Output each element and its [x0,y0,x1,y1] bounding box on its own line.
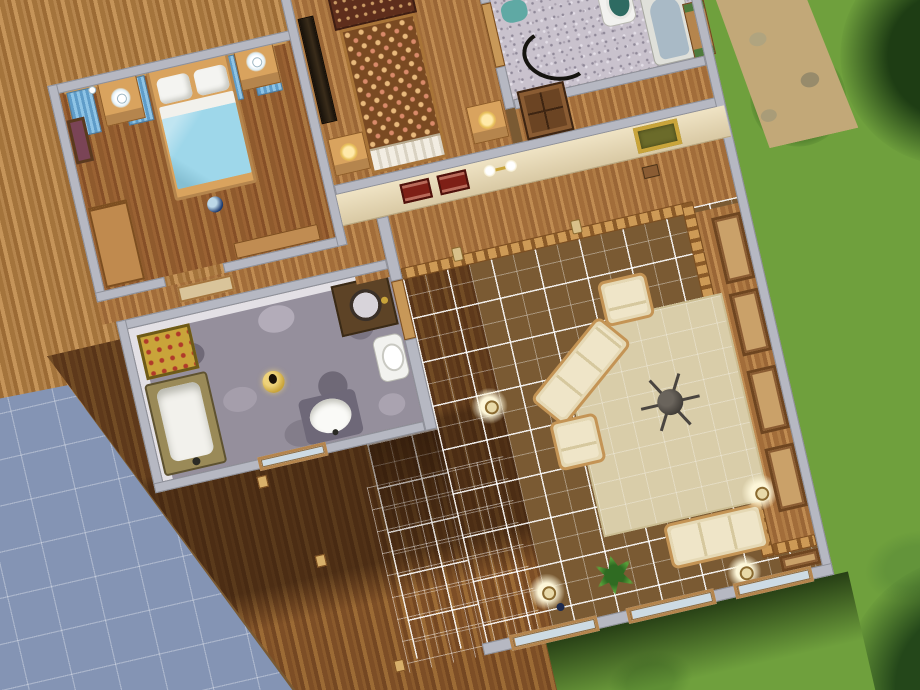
toilet-lid [603,0,636,22]
game-viewport [0,0,920,690]
gold-floor-drain[interactable] [260,369,286,395]
vanity-round-basin[interactable] [331,274,399,338]
bathtub-basin [155,381,215,463]
house-scene [0,0,920,690]
red-wall-plaque-1[interactable] [399,178,433,204]
gold-framed-picture[interactable] [633,118,683,153]
sink-basin [306,395,355,438]
vanity-tap-gold [380,296,388,304]
black-floor-arc[interactable] [519,25,595,85]
laundry-hamper-floral[interactable] [137,323,200,380]
sink-tap [332,429,339,436]
bed-blanket-blue [162,102,252,189]
wall-sconce-two-bulb[interactable] [481,155,519,184]
blue-vase[interactable] [206,195,225,214]
teal-bath-mat[interactable] [499,0,529,25]
bathtub-faucet [192,456,202,466]
toilet-seat [379,341,407,373]
vanity-basin [346,286,384,324]
sconce-bulb [482,164,496,178]
sconce-bulb [504,159,518,173]
drain-hole [268,373,278,385]
red-wall-plaque-2[interactable] [436,169,470,195]
toilet[interactable] [595,0,638,28]
